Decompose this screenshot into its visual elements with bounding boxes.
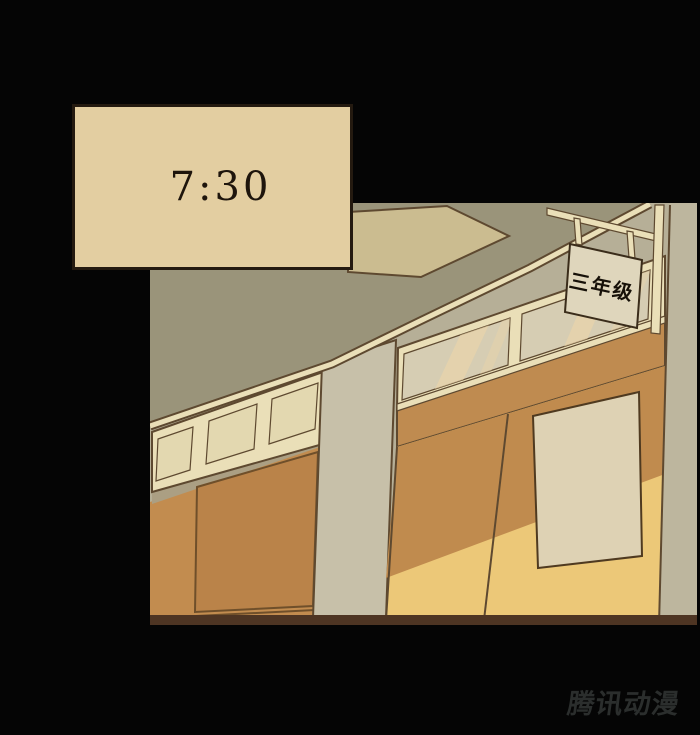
caption-time-text: 7:30 (170, 164, 272, 210)
sign-hanger-left (574, 218, 582, 245)
floor-shadow (150, 615, 697, 625)
middle-pillar (313, 340, 396, 618)
caption-box: 7:30 (72, 104, 353, 270)
comic-page: 三年级 7:30 腾讯动漫 (0, 0, 700, 735)
sign-hanger-right (627, 231, 635, 259)
door-window (533, 392, 642, 568)
publisher-watermark: 腾讯动漫 (546, 684, 700, 718)
